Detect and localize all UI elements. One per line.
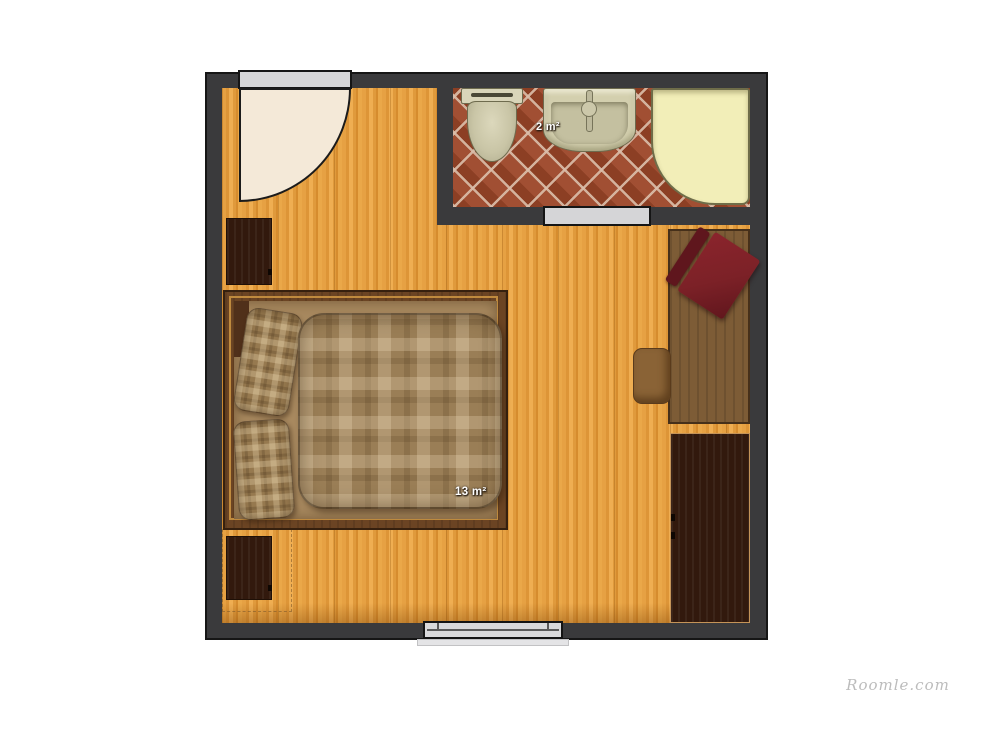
window-tick-left: [437, 623, 439, 630]
clearance-dashed-outline: [222, 529, 292, 612]
window-sill: [417, 639, 569, 646]
wardrobe[interactable]: [670, 433, 750, 623]
nightstand-top[interactable]: [226, 218, 272, 285]
small-chair[interactable]: [633, 348, 671, 404]
bathroom-area-label: 2 m²: [536, 121, 560, 133]
bathroom-door[interactable]: [543, 206, 651, 226]
bathroom-partition-wall-vertical: [437, 88, 453, 225]
window-mullion: [427, 629, 559, 631]
toilet-tank-slot: [471, 93, 513, 97]
wardrobe-handle-bottom: [671, 532, 675, 539]
nightstand-handle: [268, 269, 272, 275]
wardrobe-handle-top: [671, 514, 675, 521]
window[interactable]: [423, 621, 563, 639]
window-tick-right: [547, 623, 549, 630]
faucet-knob: [581, 101, 597, 117]
plaid-duvet[interactable]: [298, 313, 502, 509]
entry-door-opening[interactable]: [238, 70, 352, 89]
floor-plan-canvas: 2 m² 13 m² Roomle.com: [0, 0, 1000, 750]
pillow-bottom[interactable]: [233, 418, 296, 521]
bedroom-area-label: 13 m²: [455, 486, 487, 498]
roomle-watermark: Roomle.com: [808, 676, 988, 694]
